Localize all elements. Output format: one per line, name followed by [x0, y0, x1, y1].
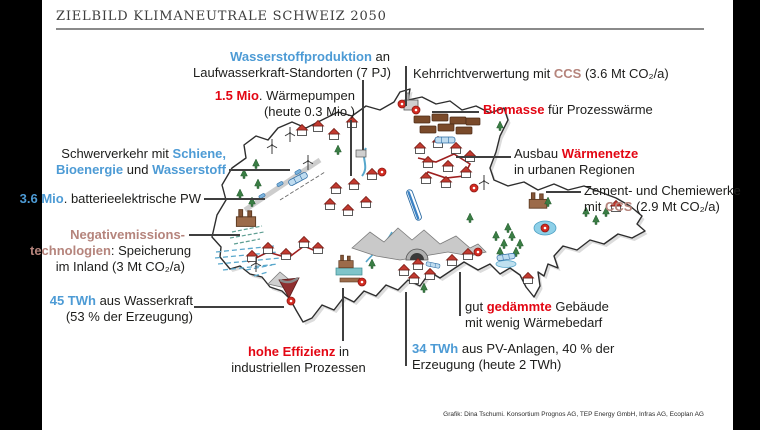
label-hydrogen-production: Wasserstoffproduktion an Laufwasserkraft…	[193, 49, 390, 81]
text-segment: Ausbau	[514, 146, 562, 161]
label-line: Kehrrichtverwertung mit CCS (3.6 Mt CO₂/…	[413, 66, 669, 82]
text-segment: Schiene,	[173, 146, 226, 161]
leader-transport	[229, 169, 290, 171]
heat-pump-marker-icon	[474, 248, 482, 256]
label-line: (53 % der Erzeugung)	[43, 309, 193, 325]
label-negative-emissions: Negativemissions- technologien: Speicher…	[30, 227, 185, 275]
text-segment: aus Wasserkraft	[96, 293, 193, 308]
text-segment: Negativemissions-	[70, 227, 185, 242]
label-line: (heute 0.3 Mio.)	[169, 104, 355, 120]
label-pv: 34 TWh aus PV-Anlagen, 40 % der Erzeugun…	[412, 341, 614, 373]
text-segment: Wasserstoffproduktion	[230, 49, 372, 64]
leader-bev	[204, 198, 265, 200]
text-segment: Bioenergie	[56, 162, 123, 177]
text-segment: . batterieelektrische PW	[64, 191, 201, 206]
leader-efficiency	[342, 288, 344, 341]
label-line: Laufwasserkraft-Standorten (7 PJ)	[193, 65, 390, 81]
label-heat-networks: Ausbau Wärmenetze in urbanen Regionen	[514, 146, 638, 178]
leader-heatpumps	[350, 120, 352, 176]
label-line: 1.5 Mio. Wärmepumpen	[169, 88, 355, 104]
text-segment: industriellen Prozessen	[231, 360, 365, 375]
leader-cement	[546, 191, 581, 193]
label-biomass: Biomasse für Prozesswärme	[483, 102, 653, 118]
label-line: Wasserstoffproduktion an	[193, 49, 390, 65]
label-line: industriellen Prozessen	[221, 360, 376, 376]
label-cement-chemistry-ccs: Zement- und Chemiewerke mit CCS (2.9 Mt …	[584, 183, 741, 215]
text-segment: an	[372, 49, 390, 64]
text-segment: Zement- und Chemiewerke	[584, 183, 741, 198]
label-line: in urbanen Regionen	[514, 162, 638, 178]
text-segment: aus PV-Anlagen, 40 % der	[458, 341, 614, 356]
text-segment: im Inland (3 Mt CO₂/a)	[56, 259, 185, 274]
text-segment: und	[123, 162, 152, 177]
map-outline	[212, 89, 645, 322]
heat-pump-marker-icon	[378, 168, 386, 176]
label-heat-pumps: 1.5 Mio. Wärmepumpen (heute 0.3 Mio.)	[169, 88, 355, 120]
text-segment: (heute 0.3 Mio.)	[264, 104, 355, 119]
text-segment: (53 % der Erzeugung)	[66, 309, 193, 324]
text-segment: . Wärmepumpen	[259, 88, 355, 103]
label-insulated-buildings: gut gedämmte Gebäude mit wenig Wärmebeda…	[465, 299, 609, 331]
heat-pump-marker-icon	[541, 224, 549, 232]
text-segment: Kehrrichtverwertung mit	[413, 66, 554, 81]
text-segment: Biomasse	[483, 102, 544, 117]
text-segment: 34 TWh	[412, 341, 458, 356]
text-segment: Wasserstoff	[152, 162, 226, 177]
label-line: 3.6 Mio. batterieelektrische PW	[15, 191, 201, 207]
label-line: mit CCS (2.9 Mt CO₂/a)	[584, 199, 741, 215]
leader-pv	[405, 292, 407, 366]
heat-pump-marker-icon	[358, 278, 366, 286]
label-waste-incineration-ccs: Kehrrichtverwertung mit CCS (3.6 Mt CO₂/…	[413, 66, 669, 82]
text-segment: Schwerverkehr mit	[61, 146, 172, 161]
label-line: 45 TWh aus Wasserkraft	[43, 293, 193, 309]
label-line: Ausbau Wärmenetze	[514, 146, 638, 162]
leader-biomass	[432, 111, 479, 113]
text-segment: mit	[584, 199, 605, 214]
text-segment: gedämmte	[487, 299, 552, 314]
text-segment: (3.6 Mt CO₂/a)	[581, 66, 668, 81]
text-segment: Erzeugung (heute 2 TWh)	[412, 357, 561, 372]
leader-insulation	[459, 272, 461, 316]
label-line: Zement- und Chemiewerke	[584, 183, 741, 199]
hydro-plant-icon	[356, 150, 366, 157]
credit-line: Grafik: Dina Tschumi. Konsortium Prognos…	[400, 411, 704, 418]
label-line: Bioenergie und Wasserstoff	[40, 162, 226, 178]
label-industrial-efficiency: hohe Effizienz in industriellen Prozesse…	[221, 344, 376, 376]
text-segment: gut	[465, 299, 487, 314]
label-line: Biomasse für Prozesswärme	[483, 102, 653, 118]
leader-hydro	[194, 306, 284, 308]
text-segment: 3.6 Mio	[20, 191, 64, 206]
label-line: technologien: Speicherung	[30, 243, 185, 259]
label-line: mit wenig Wärmebedarf	[465, 315, 609, 331]
text-segment: in	[335, 344, 349, 359]
label-line: Erzeugung (heute 2 TWh)	[412, 357, 614, 373]
lake-icon	[496, 261, 516, 268]
heat-pump-marker-icon	[470, 184, 478, 192]
leader-heatnets	[456, 156, 511, 158]
label-line: 34 TWh aus PV-Anlagen, 40 % der	[412, 341, 614, 357]
text-segment: CCS	[605, 199, 632, 214]
heat-pump-marker-icon	[412, 106, 420, 114]
infographic-canvas: ZIELBILD KLIMANEUTRALE SCHWEIZ 2050	[0, 0, 760, 440]
label-line: Negativemissions-	[30, 227, 185, 243]
train-icon	[435, 137, 455, 143]
label-line: gut gedämmte Gebäude	[465, 299, 609, 315]
text-segment: Gebäude	[552, 299, 609, 314]
text-segment: für Prozesswärme	[544, 102, 652, 117]
text-segment: Laufwasserkraft-Standorten (7 PJ)	[193, 65, 391, 80]
text-segment: hohe Effizienz	[248, 344, 335, 359]
text-segment: technologien	[30, 243, 111, 258]
text-segment: 1.5 Mio	[215, 88, 259, 103]
label-line: hohe Effizienz in	[221, 344, 376, 360]
label-line: im Inland (3 Mt CO₂/a)	[30, 259, 185, 275]
label-heavy-transport: Schwerverkehr mit Schiene, Bioenergie un…	[40, 146, 226, 178]
text-segment: CCS	[554, 66, 581, 81]
heat-pump-marker-icon	[287, 297, 295, 305]
text-segment: in urbanen Regionen	[514, 162, 635, 177]
text-segment: (2.9 Mt CO₂/a)	[632, 199, 719, 214]
label-battery-electric-cars: 3.6 Mio. batterieelektrische PW	[15, 191, 201, 207]
leader-negem	[189, 234, 240, 236]
text-segment: Wärmenetze	[562, 146, 639, 161]
text-segment: : Speicherung	[111, 243, 191, 258]
text-segment: mit wenig Wärmebedarf	[465, 315, 602, 330]
text-segment: 45 TWh	[50, 293, 96, 308]
leader-hydrogen	[362, 80, 364, 150]
label-hydropower: 45 TWh aus Wasserkraft (53 % der Erzeugu…	[43, 293, 193, 325]
label-line: Schwerverkehr mit Schiene,	[40, 146, 226, 162]
leader-waste	[405, 66, 407, 106]
